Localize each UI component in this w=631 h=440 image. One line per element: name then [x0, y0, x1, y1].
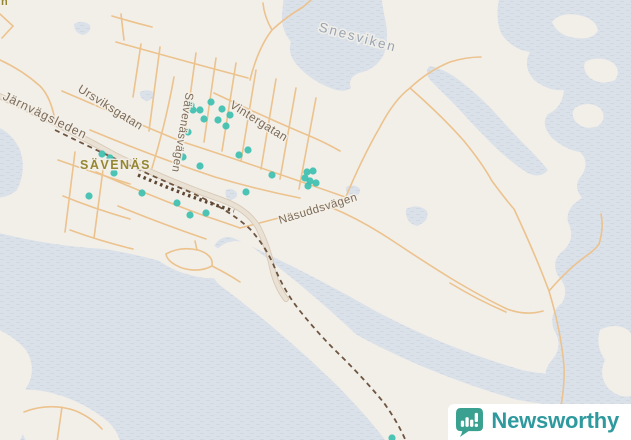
map-marker[interactable] — [222, 122, 229, 129]
place-label: SÄVENÄS — [80, 157, 151, 172]
map-marker[interactable] — [304, 182, 311, 189]
map-marker[interactable] — [312, 179, 319, 186]
map-marker[interactable] — [173, 199, 180, 206]
newsworthy-chart-bubble-icon — [456, 408, 483, 437]
map-marker[interactable] — [207, 98, 214, 105]
newsworthy-wordmark: Newsworthy — [491, 410, 619, 432]
map-marker[interactable] — [268, 171, 275, 178]
map-marker[interactable] — [309, 167, 316, 174]
newsworthy-logo[interactable]: Newsworthy — [448, 404, 631, 440]
map-marker[interactable] — [218, 105, 225, 112]
map-marker[interactable] — [196, 106, 203, 113]
place-label: n — [1, 0, 8, 8]
map-marker[interactable] — [202, 209, 209, 216]
map-marker[interactable] — [138, 189, 145, 196]
map[interactable]: JärnvägsledenUrsviksgatanSävenäsvägenVin… — [0, 0, 631, 440]
map-marker[interactable] — [244, 146, 251, 153]
map-marker[interactable] — [235, 151, 242, 158]
map-marker[interactable] — [242, 188, 249, 195]
map-marker[interactable] — [85, 192, 92, 199]
map-marker[interactable] — [196, 162, 203, 169]
map-marker[interactable] — [186, 211, 193, 218]
map-canvas[interactable]: JärnvägsledenUrsviksgatanSävenäsvägenVin… — [0, 0, 631, 440]
map-marker[interactable] — [214, 116, 221, 123]
map-marker[interactable] — [98, 150, 105, 157]
map-marker[interactable] — [200, 115, 207, 122]
